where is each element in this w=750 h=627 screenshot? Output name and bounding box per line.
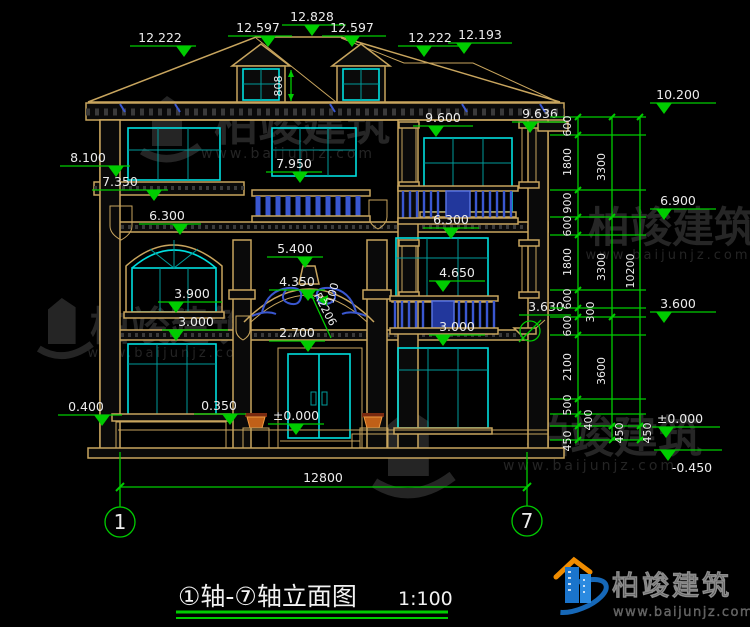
flag-label: 3.000: [178, 314, 214, 329]
balustrade-center: [252, 190, 370, 222]
chain-b-label: 3300: [595, 253, 608, 281]
ground-slab: [88, 448, 564, 458]
chain-c-label: 450: [641, 423, 654, 444]
flag-label: 12.597: [330, 20, 374, 35]
flag-label: 12.828: [290, 9, 334, 24]
title-scale: 1:100: [398, 588, 453, 610]
flag-label: 6.900: [660, 193, 696, 208]
roof: [88, 37, 560, 102]
flag-label: 8.100: [70, 150, 106, 165]
flag-label: 12.222: [408, 30, 452, 45]
company-logo: 柏竣建筑 www.baijunjz.com: [545, 560, 750, 620]
dim-label-808: 808: [272, 76, 285, 97]
chain-a-label: 300: [584, 302, 597, 323]
flag-3600: 3.600: [650, 296, 716, 323]
flag-5400: 5.400: [267, 241, 323, 268]
chain-c-label: 10200: [624, 254, 637, 289]
flag-12222-left: 12.222: [130, 30, 196, 57]
flag-label: ±0.000: [273, 408, 319, 423]
eave-band: [86, 103, 564, 120]
flag-label: 7.950: [276, 156, 312, 171]
flag-label: 10.200: [656, 87, 700, 102]
dormer-gable: [332, 44, 390, 66]
pilaster-right-wing: [398, 120, 418, 450]
flag-label: 3.630: [528, 299, 564, 314]
drawing-title: ①轴-⑦轴立面图 1:100: [176, 582, 453, 618]
chain-b-label: 450: [613, 423, 626, 444]
chain-a-label: 450: [561, 431, 574, 452]
chain-a-label: 1800: [561, 248, 574, 276]
flag-label: ±0.000: [657, 411, 703, 426]
flag-label: 0.400: [68, 399, 104, 414]
chain-a-label: 600: [561, 289, 574, 310]
flag-label: 3.900: [174, 286, 210, 301]
watermark-url: www.baijunjz.com: [585, 248, 750, 263]
arch-scroll-left: [252, 288, 301, 316]
watermark-url: www.baijunjz.com: [503, 458, 677, 474]
logo-building-2: [580, 574, 591, 603]
flag-10200: 10.200: [650, 87, 716, 114]
dormer-gable: [232, 44, 290, 66]
stone-plinth-left: [116, 422, 226, 448]
chain-a-label: 900: [561, 193, 574, 214]
flag-0000-door: ±0.000: [268, 408, 324, 435]
flag-label: 12.222: [138, 30, 182, 45]
chain-b-label: 3300: [595, 153, 608, 181]
flag-label: 2.700: [279, 325, 315, 340]
flag-label: 9.636: [522, 106, 558, 121]
title-text: ①轴-⑦轴立面图: [178, 582, 357, 611]
top-elevation-flags: 12.222 12.597 12.828 12.597 12.222 12.19…: [130, 9, 512, 57]
flag-label: 4.650: [439, 265, 475, 280]
right-elevation-flags: 10.200 6.900 3.600 ±0.000 -0.450: [650, 87, 722, 475]
flag-12597-right: 12.597: [322, 20, 386, 47]
drawing-canvas: 柏竣建筑 www.baijunjz.com 柏竣建筑 www.baijunjz.…: [0, 0, 750, 627]
chain-b-label: 3600: [595, 357, 608, 385]
pilaster-right-corner: [528, 120, 548, 450]
bottom-axis-dimension: 12800 1 7: [105, 452, 542, 537]
flag-label: 6.300: [149, 208, 185, 223]
chain-a-label: 2100: [561, 353, 574, 381]
flag-label: 12.597: [236, 20, 280, 35]
flag-4650: 4.650: [429, 265, 485, 292]
chain-a-label: 500: [561, 395, 574, 416]
flag-label: 6.300: [433, 212, 469, 227]
flag-label: 12.193: [458, 27, 502, 42]
cad-elevation-drawing: 柏竣建筑 www.baijunjz.com 柏竣建筑 www.baijunjz.…: [0, 0, 750, 627]
chain-a-label: 600: [561, 216, 574, 237]
chain-a-label: 400: [582, 410, 595, 431]
logo-building-1: [565, 567, 579, 603]
chain-a-label: 600: [561, 116, 574, 137]
flag-label: 4.350: [279, 274, 315, 289]
balusters: [258, 196, 358, 216]
axis-1-label: 1: [114, 510, 127, 534]
flag-label: 7.350: [102, 174, 138, 189]
flag-12193: 12.193: [448, 27, 512, 54]
arch-offset-label: 100: [324, 281, 342, 305]
overall-width-label: 12800: [303, 470, 343, 485]
dormer-right: [332, 44, 390, 102]
flag-label: 3.000: [439, 319, 475, 334]
flag-label: 9.600: [425, 110, 461, 125]
axis-7-label: 7: [521, 509, 534, 533]
chain-a-label: 600: [561, 316, 574, 337]
chain-a-label: 1800: [561, 148, 574, 176]
flag-label: 0.350: [201, 398, 237, 413]
flag-label: 3.600: [660, 296, 696, 311]
entry-door: [278, 348, 362, 448]
facade-wall: [100, 120, 548, 450]
logo-name: 柏竣建筑: [612, 570, 732, 602]
flag-label: -0.450: [672, 460, 712, 475]
flag-12597-left: 12.597: [228, 20, 292, 47]
logo-url: www.baijunjz.com: [613, 605, 750, 620]
right-dimension-chains: 600 1800 900 600 1800 600 300 600 2100 5…: [550, 114, 654, 452]
flag-label: 5.400: [277, 241, 313, 256]
